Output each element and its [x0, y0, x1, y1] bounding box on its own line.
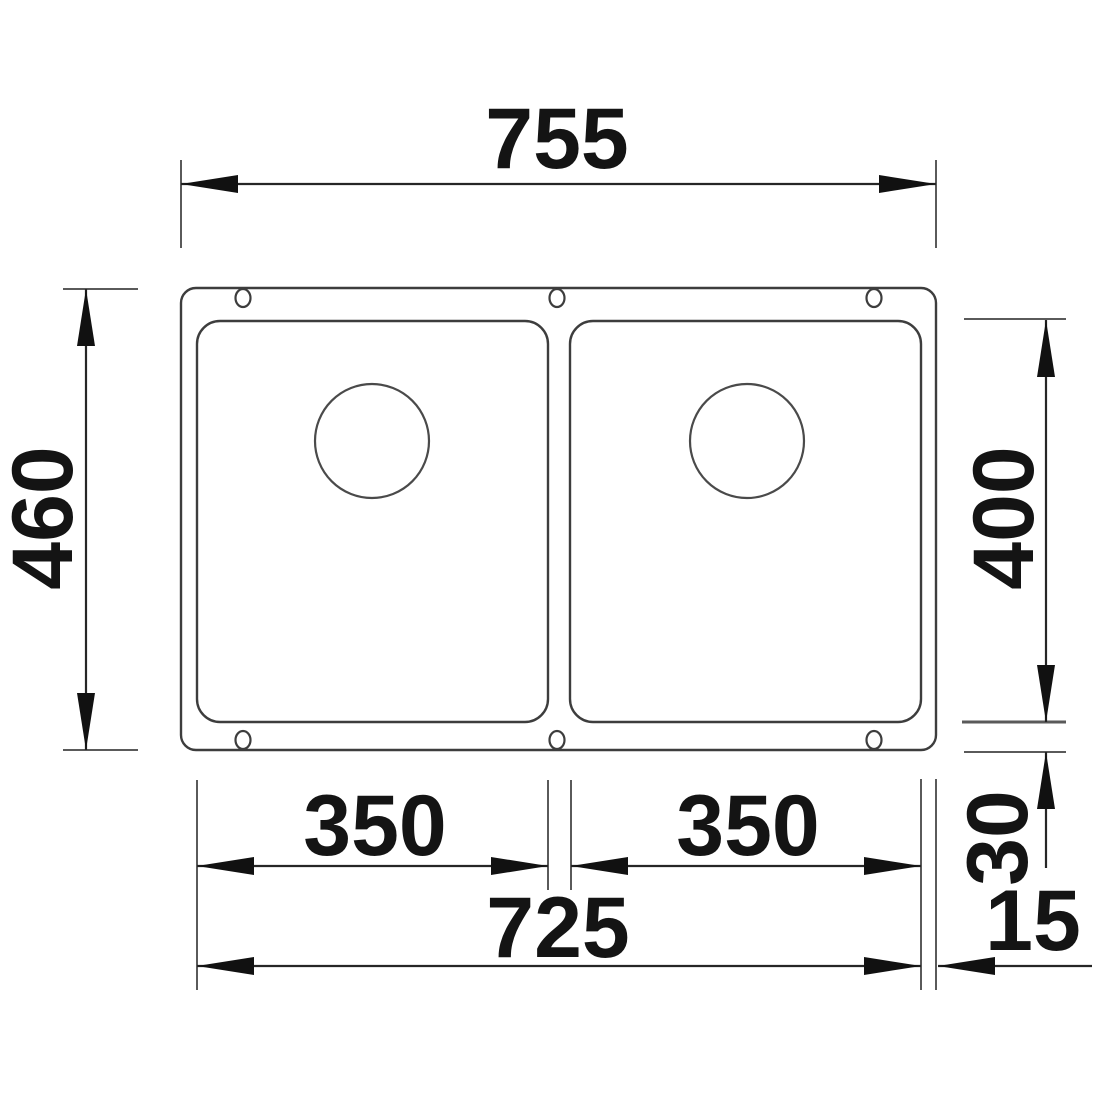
mounting-hole-bottom-left: [236, 731, 251, 749]
dimension-labels-group: 755 460 400 30 350 350 725 15: [0, 91, 1081, 976]
dim-cutout-width-arrow-right: [864, 957, 921, 975]
mounting-hole-top-left: [236, 289, 251, 307]
drain-holes-group: [315, 384, 804, 498]
sink-bowl-right: [570, 321, 921, 722]
dim-bowl-left-width-label: 350: [303, 778, 447, 874]
sink-bowl-left: [197, 321, 548, 722]
dim-overall-depth-label: 460: [0, 446, 91, 590]
dim-bowl-depth-arrow-bottom: [1037, 665, 1055, 722]
dim-bowl-right-width-label: 350: [676, 778, 820, 874]
sink-dimension-drawing: 755 460 400 30 350 350 725 15: [0, 0, 1100, 1100]
dim-bowl-right-width-arrow-left: [571, 857, 628, 875]
dim-bowl-right-width-arrow-right: [864, 857, 921, 875]
mounting-hole-bottom-center: [550, 731, 565, 749]
dim-rim-side-label: 15: [985, 873, 1081, 969]
dimension-lines-group: [77, 175, 1092, 975]
dim-bowl-depth-label: 400: [956, 446, 1052, 590]
dim-rim-bottom-label: 30: [950, 790, 1046, 886]
mounting-hole-bottom-right: [867, 731, 882, 749]
dim-overall-depth-arrow-bottom: [77, 693, 95, 750]
dim-overall-depth-arrow-top: [77, 289, 95, 346]
dim-bowl-depth-arrow-top: [1037, 320, 1055, 377]
dim-bowl-left-width-arrow-right: [491, 857, 548, 875]
dim-bowl-left-width-arrow-left: [197, 857, 254, 875]
sink-body-group: [181, 288, 936, 750]
dim-cutout-width-arrow-left: [197, 957, 254, 975]
drawing-canvas: 755 460 400 30 350 350 725 15: [0, 0, 1100, 1100]
mounting-hole-top-right: [867, 289, 882, 307]
dim-overall-width-arrow-right: [879, 175, 936, 193]
drain-hole-left: [315, 384, 429, 498]
dim-cutout-width-label: 725: [486, 880, 630, 976]
sink-outer-edge: [181, 288, 936, 750]
mounting-hole-top-center: [550, 289, 565, 307]
dim-overall-width-arrow-left: [181, 175, 238, 193]
dim-overall-width-label: 755: [485, 91, 629, 187]
drain-hole-right: [690, 384, 804, 498]
